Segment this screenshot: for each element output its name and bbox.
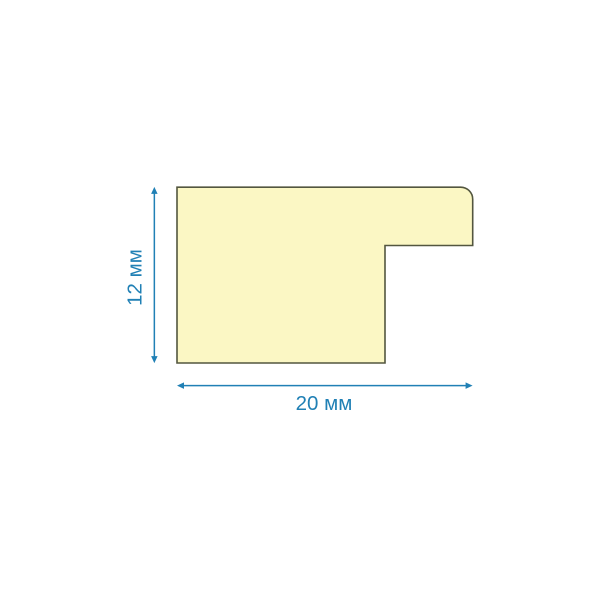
- svg-text:20 мм: 20 мм: [296, 392, 353, 415]
- svg-text:12 мм: 12 мм: [124, 249, 147, 306]
